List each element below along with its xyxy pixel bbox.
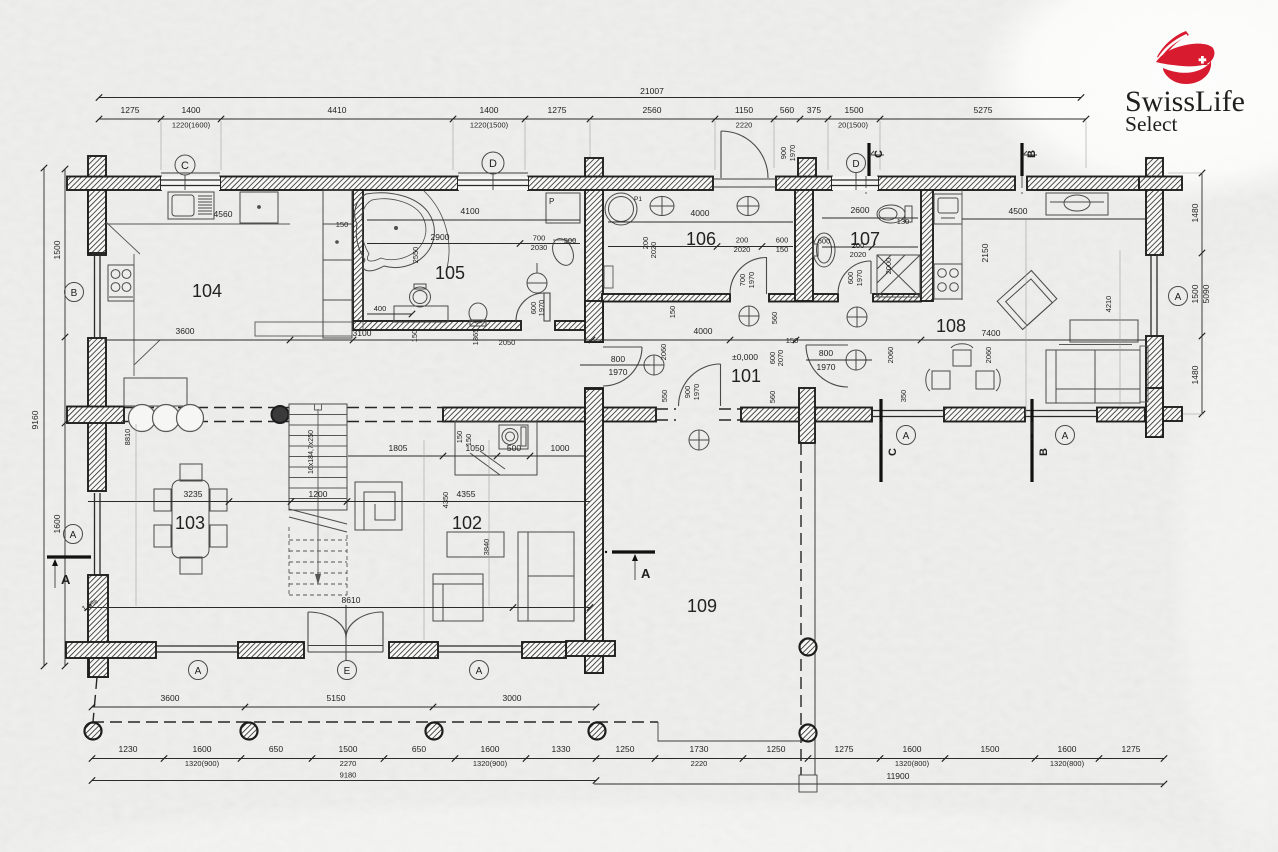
svg-text:3100: 3100 [353, 328, 372, 338]
svg-text:5275: 5275 [974, 105, 993, 115]
svg-text:2900: 2900 [431, 232, 450, 242]
svg-text:2270: 2270 [340, 759, 357, 768]
svg-text:1150: 1150 [735, 105, 754, 115]
svg-text:1500: 1500 [1190, 284, 1200, 303]
svg-text:550: 550 [660, 390, 669, 403]
svg-text:350: 350 [899, 390, 908, 403]
svg-text:1500: 1500 [339, 744, 358, 754]
svg-text:1600: 1600 [481, 744, 500, 754]
svg-text:4410: 4410 [328, 105, 347, 115]
svg-text:2220: 2220 [736, 121, 753, 130]
svg-text:A: A [70, 530, 77, 541]
svg-text:2600: 2600 [851, 205, 870, 215]
svg-text:A: A [903, 431, 910, 442]
svg-text:4355: 4355 [457, 489, 476, 499]
svg-text:1600: 1600 [193, 744, 212, 754]
svg-text:2050: 2050 [499, 338, 516, 347]
svg-text:P1: P1 [634, 196, 642, 203]
svg-text:150: 150 [776, 245, 789, 254]
svg-text:3000: 3000 [503, 693, 522, 703]
svg-text:Select: Select [1125, 112, 1178, 136]
svg-text:2000: 2000 [884, 258, 893, 275]
svg-text:A: A [1175, 292, 1182, 303]
svg-text:P: P [549, 197, 554, 206]
svg-text:1500: 1500 [845, 105, 864, 115]
svg-text:1500: 1500 [981, 744, 1000, 754]
svg-text:B: B [1038, 448, 1050, 456]
svg-text:7400: 7400 [982, 328, 1001, 338]
svg-text:D: D [852, 159, 859, 170]
svg-text:1330: 1330 [552, 744, 571, 754]
svg-text:B: B [1026, 150, 1038, 158]
svg-text:1320(900): 1320(900) [185, 759, 220, 768]
svg-text:1970: 1970 [788, 145, 797, 162]
svg-text:4100: 4100 [461, 206, 480, 216]
svg-text:1000: 1000 [551, 443, 570, 453]
svg-text:700: 700 [533, 234, 546, 243]
svg-text:375: 375 [807, 105, 821, 115]
svg-text:1970: 1970 [609, 367, 628, 377]
svg-text:150: 150 [668, 306, 677, 319]
svg-text:1500: 1500 [52, 240, 62, 259]
svg-text:800: 800 [819, 348, 833, 358]
svg-text:1970: 1970 [692, 384, 701, 401]
svg-text:560: 560 [780, 105, 794, 115]
svg-text:600: 600 [846, 272, 855, 285]
svg-text:150: 150 [410, 330, 419, 343]
svg-text:105: 105 [435, 263, 465, 283]
svg-text:2550: 2550 [411, 247, 420, 264]
svg-text:1480: 1480 [1190, 203, 1200, 222]
svg-text:400: 400 [374, 304, 387, 313]
svg-text:1275: 1275 [121, 105, 140, 115]
svg-text:1250: 1250 [767, 744, 786, 754]
svg-text:3840: 3840 [482, 539, 491, 556]
svg-text:900: 900 [683, 386, 692, 399]
svg-text:2560: 2560 [643, 105, 662, 115]
svg-text:1865: 1865 [471, 329, 480, 346]
svg-text:B: B [71, 288, 78, 299]
svg-text:1275: 1275 [835, 744, 854, 754]
svg-text:109: 109 [687, 596, 717, 616]
svg-text:107: 107 [850, 229, 880, 249]
svg-text:4000: 4000 [691, 208, 710, 218]
svg-text:3235: 3235 [184, 489, 203, 499]
svg-text:104: 104 [192, 281, 222, 301]
svg-text:2060: 2060 [886, 347, 895, 364]
svg-text:150: 150 [464, 434, 473, 447]
svg-text:1600: 1600 [903, 744, 922, 754]
svg-text:C: C [873, 150, 885, 158]
svg-text:9160: 9160 [30, 410, 40, 429]
svg-text:106: 106 [686, 229, 716, 249]
svg-text:2020: 2020 [734, 245, 751, 254]
svg-text:E: E [344, 666, 351, 677]
svg-text:±0,000: ±0,000 [732, 352, 758, 362]
svg-text:C: C [887, 448, 899, 456]
svg-text:500: 500 [507, 443, 521, 453]
svg-text:102: 102 [452, 513, 482, 533]
svg-text:1730: 1730 [690, 744, 709, 754]
svg-text:1400: 1400 [182, 105, 201, 115]
svg-text:560: 560 [770, 312, 779, 325]
svg-text:1970: 1970 [855, 270, 864, 287]
svg-text:2070: 2070 [776, 350, 785, 367]
svg-text:A: A [195, 666, 202, 677]
svg-text:1805: 1805 [389, 443, 408, 453]
svg-text:1320(800): 1320(800) [1050, 759, 1085, 768]
svg-text:4500: 4500 [1009, 206, 1028, 216]
svg-text:4560: 4560 [214, 209, 233, 219]
svg-text:500: 500 [564, 236, 577, 245]
svg-text:2150: 2150 [980, 243, 990, 262]
svg-text:1970: 1970 [537, 300, 546, 317]
svg-text:4210: 4210 [1104, 296, 1113, 313]
svg-text:1600: 1600 [1058, 744, 1077, 754]
svg-text:2020: 2020 [649, 242, 658, 259]
svg-text:D: D [489, 158, 497, 170]
svg-text:1230: 1230 [119, 744, 138, 754]
svg-text:1480: 1480 [1190, 365, 1200, 384]
svg-text:650: 650 [269, 744, 283, 754]
svg-text:800: 800 [611, 354, 625, 364]
svg-text:8610: 8610 [342, 595, 361, 605]
svg-text:1275: 1275 [1122, 744, 1141, 754]
svg-text:2060: 2060 [984, 347, 993, 364]
svg-text:1275: 1275 [548, 105, 567, 115]
svg-text:600: 600 [776, 236, 789, 245]
svg-text:1200: 1200 [309, 489, 328, 499]
svg-text:4000: 4000 [694, 326, 713, 336]
svg-text:1220(1600): 1220(1600) [172, 121, 211, 130]
svg-text:A: A [1062, 431, 1069, 442]
svg-text:21007: 21007 [640, 86, 664, 96]
svg-text:11900: 11900 [886, 771, 909, 781]
svg-text:1220(1500): 1220(1500) [470, 121, 509, 130]
svg-text:130: 130 [897, 217, 910, 226]
svg-text:3600: 3600 [176, 326, 195, 336]
svg-text:A: A [641, 566, 651, 581]
svg-text:1600: 1600 [52, 514, 62, 533]
svg-text:1250: 1250 [616, 744, 635, 754]
svg-text:3600: 3600 [161, 693, 180, 703]
svg-text:1400: 1400 [480, 105, 499, 115]
svg-text:900: 900 [779, 147, 788, 160]
svg-text:1320(800): 1320(800) [895, 759, 930, 768]
svg-text:2030: 2030 [531, 243, 548, 252]
svg-text:1970: 1970 [817, 362, 836, 372]
svg-text:650: 650 [412, 744, 426, 754]
svg-text:2020: 2020 [850, 250, 867, 259]
svg-text:20(1500): 20(1500) [838, 121, 869, 130]
svg-text:4350: 4350 [441, 492, 450, 509]
svg-text:101: 101 [731, 366, 761, 386]
svg-text:560: 560 [768, 391, 777, 404]
svg-text:700: 700 [738, 274, 747, 287]
svg-text:2060: 2060 [659, 344, 668, 361]
svg-text:2220: 2220 [691, 759, 708, 768]
svg-text:9180: 9180 [340, 771, 357, 780]
svg-text:150: 150 [455, 431, 464, 444]
svg-text:5150: 5150 [327, 693, 346, 703]
svg-text:16x184,7x250: 16x184,7x250 [308, 430, 315, 474]
svg-text:150: 150 [336, 220, 349, 229]
svg-text:1320(900): 1320(900) [473, 759, 508, 768]
svg-text:600: 600 [818, 237, 831, 246]
svg-text:1970: 1970 [747, 272, 756, 289]
svg-text:C: C [181, 160, 189, 172]
svg-text:108: 108 [936, 316, 966, 336]
svg-text:103: 103 [175, 513, 205, 533]
svg-text:A: A [476, 666, 483, 677]
svg-text:5090: 5090 [1201, 284, 1211, 303]
svg-text:A: A [61, 572, 71, 587]
svg-text:150: 150 [786, 336, 799, 345]
svg-text:200: 200 [736, 236, 749, 245]
svg-text:8810: 8810 [123, 429, 132, 446]
